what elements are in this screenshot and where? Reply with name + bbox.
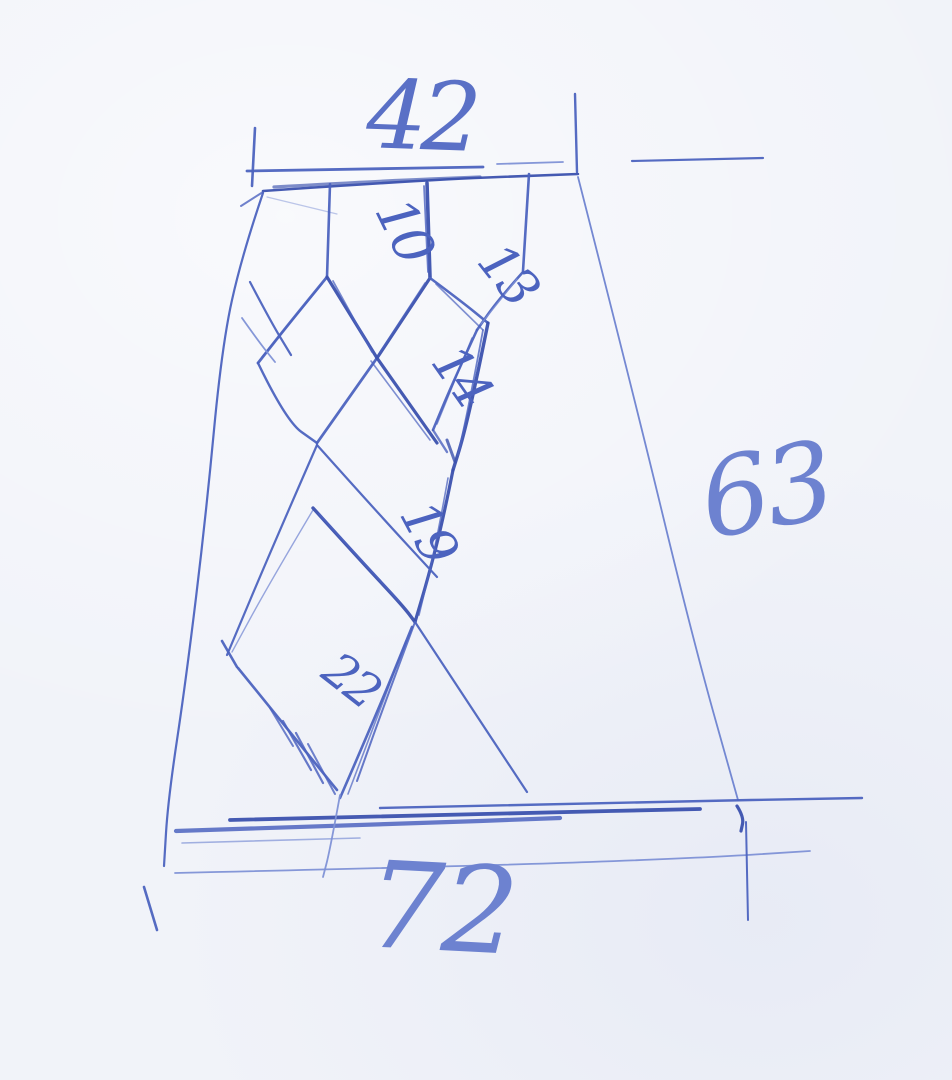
dimension-label-right-height: 63 <box>691 418 840 564</box>
pen-stroke <box>144 887 157 930</box>
pen-stroke <box>380 283 425 352</box>
pen-stroke <box>737 806 743 831</box>
pen-stroke <box>333 281 372 352</box>
pen-stroke <box>252 128 255 186</box>
pen-stroke <box>436 284 483 330</box>
pen-stroke <box>296 733 323 783</box>
pen-stroke <box>575 94 577 172</box>
pen-stroke <box>283 721 311 770</box>
pen-stroke <box>746 822 748 920</box>
pen-stroke <box>270 708 293 746</box>
dimension-label-top-width: 42 <box>364 60 479 174</box>
pen-stroke <box>319 514 399 601</box>
sketch-drawing: 42 63 72 10 13 14 19 22 <box>0 0 952 1080</box>
pen-stroke <box>182 838 360 843</box>
segment-label-14: 14 <box>419 334 503 418</box>
pen-stroke <box>323 795 340 877</box>
pen-stroke <box>230 809 700 820</box>
pen-stroke <box>447 440 455 462</box>
pen-stroke <box>267 197 337 214</box>
pen-stroke <box>227 445 317 655</box>
pen-stroke <box>632 158 763 161</box>
pen-stroke <box>327 184 330 277</box>
pen-stroke <box>242 318 275 362</box>
pen-stroke <box>415 622 527 792</box>
pen-stroke <box>377 278 430 358</box>
segment-label-10: 10 <box>363 188 448 273</box>
pen-stroke <box>317 358 377 443</box>
pen-stroke <box>222 641 237 667</box>
segment-label-13: 13 <box>465 232 550 317</box>
paper-sheet: 42 63 72 10 13 14 19 22 <box>0 0 952 1080</box>
dimension-label-bottom-width: 72 <box>364 836 520 983</box>
pen-stroke <box>250 282 291 355</box>
pen-stroke <box>308 744 335 794</box>
pen-stroke <box>164 193 263 866</box>
pen-stroke <box>258 363 317 443</box>
handwritten-labels-layer: 42 63 72 10 13 14 19 22 <box>311 60 840 983</box>
pen-stroke <box>371 361 430 440</box>
pen-stroke <box>380 798 862 808</box>
pen-stroke <box>274 177 480 187</box>
pen-stroke <box>497 162 563 164</box>
pen-stroke <box>232 510 313 652</box>
segment-label-19: 19 <box>387 491 469 574</box>
